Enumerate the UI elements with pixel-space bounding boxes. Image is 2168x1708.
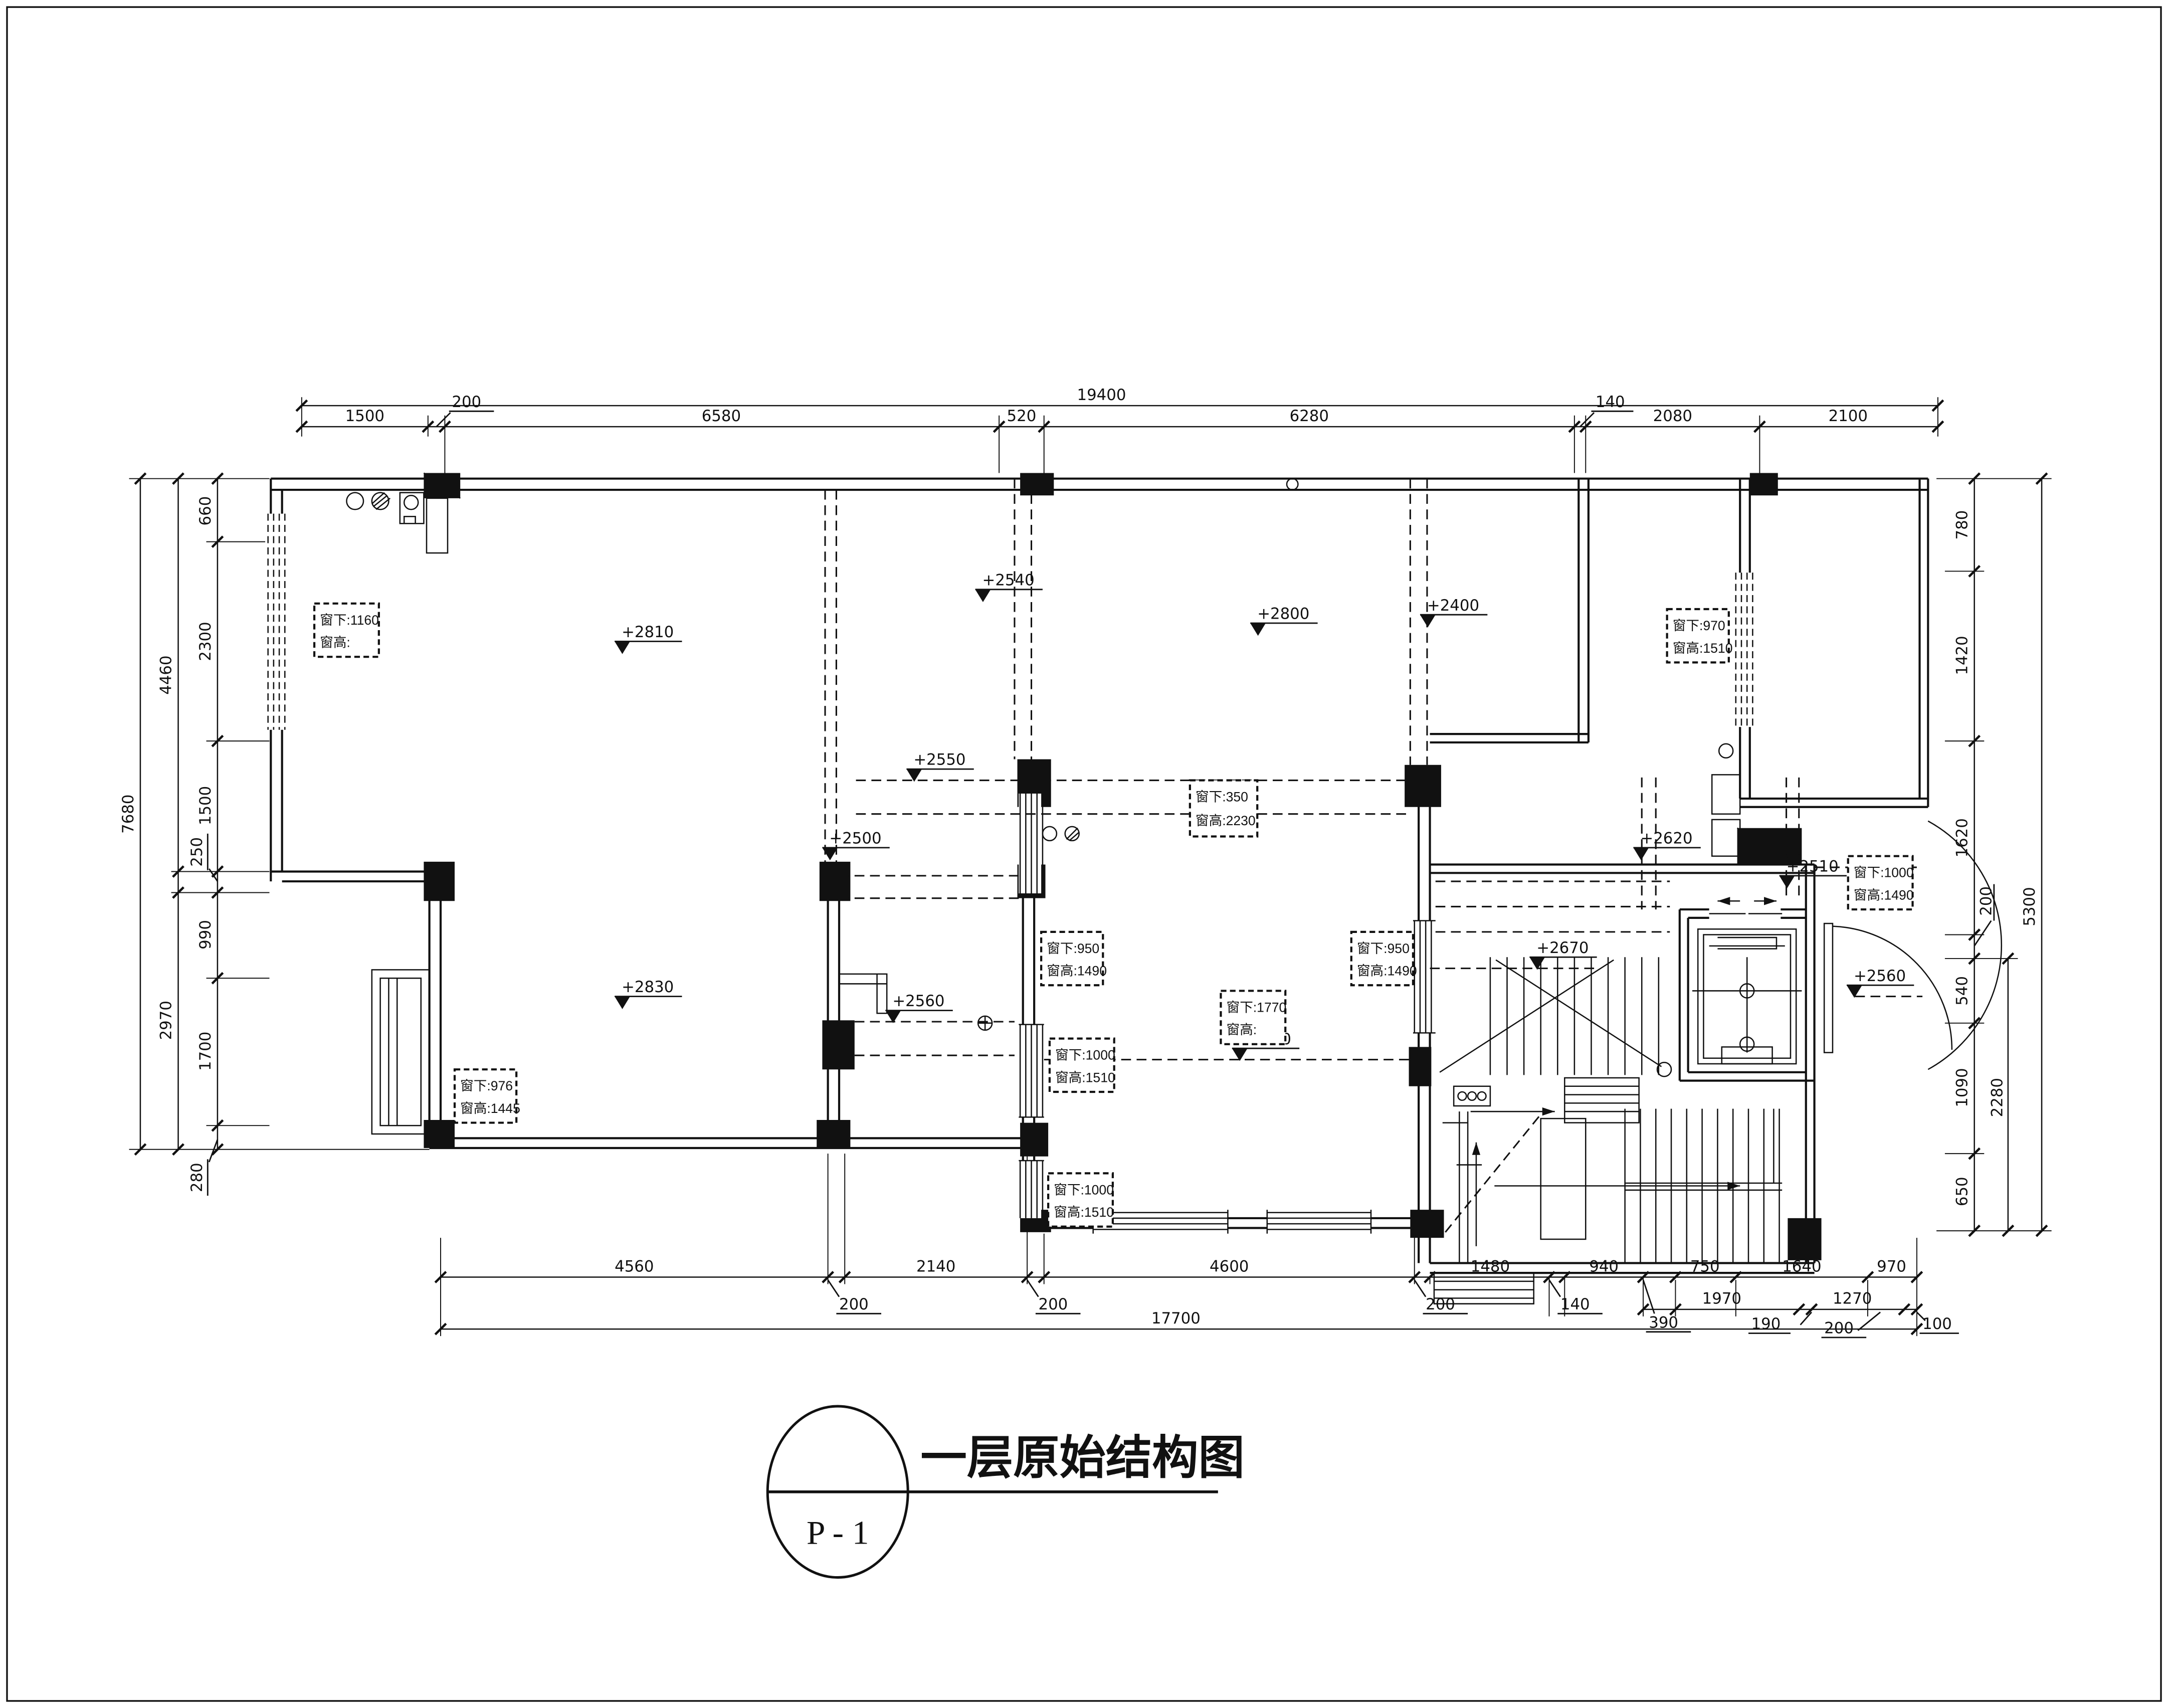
flue-duct bbox=[427, 498, 448, 553]
svg-text:520: 520 bbox=[1007, 407, 1037, 425]
svg-text:+2670: +2670 bbox=[1536, 939, 1589, 957]
dim-leader: 250 bbox=[188, 834, 218, 881]
svg-text:4460: 4460 bbox=[157, 655, 175, 694]
svg-text:窗下:1000: 窗下:1000 bbox=[1054, 1182, 1114, 1197]
svg-text:1620: 1620 bbox=[1953, 818, 1972, 857]
svg-text:窗下:350: 窗下:350 bbox=[1196, 790, 1248, 805]
svg-text:+2810: +2810 bbox=[622, 623, 674, 641]
svg-text:窗高:: 窗高: bbox=[1227, 1022, 1257, 1037]
elevation-marker: +2620 bbox=[1633, 830, 1700, 861]
svg-text:1270: 1270 bbox=[1833, 1290, 1872, 1308]
drawing-title: 一层原始结构图 bbox=[920, 1431, 1245, 1483]
top-wall-circle bbox=[1287, 479, 1298, 490]
svg-text:2300: 2300 bbox=[196, 622, 215, 661]
window-label: 窗下:976窗高:1445 bbox=[455, 1069, 520, 1122]
curved-bay-arc bbox=[1928, 821, 2001, 1069]
svg-text:6580: 6580 bbox=[702, 407, 741, 425]
elevation-marker: +2560 bbox=[1847, 967, 1914, 998]
window-label: 窗下:350窗高:2230 bbox=[1190, 781, 1257, 837]
title-block: P - 1 一层原始结构图 bbox=[767, 1406, 1245, 1578]
svg-text:+2560: +2560 bbox=[892, 992, 944, 1010]
svg-text:窗高:1490: 窗高:1490 bbox=[1047, 964, 1107, 979]
svg-text:200: 200 bbox=[1977, 886, 1995, 916]
dim-left-total: 7680 bbox=[119, 795, 137, 834]
svg-text:2080: 2080 bbox=[1653, 407, 1692, 425]
svg-text:窗下:1770: 窗下:1770 bbox=[1227, 1000, 1287, 1015]
dim-leader: 140 bbox=[1549, 1280, 1602, 1313]
svg-text:窗下:970: 窗下:970 bbox=[1673, 618, 1725, 633]
svg-text:200: 200 bbox=[1039, 1295, 1068, 1313]
dim-leader: 280 bbox=[188, 1140, 218, 1196]
elevation-marker: +2800 bbox=[1250, 605, 1317, 636]
window-label: 窗下:1000窗高:1510 bbox=[1048, 1173, 1114, 1226]
dim-leader: 200 bbox=[1027, 1280, 1080, 1313]
svg-text:窗下:1000: 窗下:1000 bbox=[1055, 1048, 1115, 1063]
elevation-marker: +2400 bbox=[1420, 597, 1487, 628]
svg-text:200: 200 bbox=[1824, 1319, 1854, 1337]
svg-text:1970: 1970 bbox=[1702, 1290, 1741, 1308]
svg-text:200: 200 bbox=[452, 393, 481, 411]
staircase bbox=[1440, 957, 1782, 1263]
elevation-marker: +2670 bbox=[1529, 939, 1597, 970]
svg-text:窗下:976: 窗下:976 bbox=[460, 1078, 513, 1093]
entry-fixture bbox=[1454, 1086, 1490, 1106]
svg-text:2970: 2970 bbox=[157, 1001, 175, 1040]
elevation-marker: +2550 bbox=[906, 751, 973, 782]
svg-text:200: 200 bbox=[839, 1295, 869, 1313]
svg-text:窗高:1445: 窗高:1445 bbox=[460, 1101, 520, 1116]
svg-text:窗高:: 窗高: bbox=[320, 635, 350, 650]
svg-text:+2500: +2500 bbox=[829, 830, 881, 848]
svg-text:650: 650 bbox=[1953, 1177, 1972, 1206]
elevator bbox=[1692, 901, 1802, 1064]
svg-text:窗高:1490: 窗高:1490 bbox=[1854, 887, 1914, 902]
bay-window bbox=[372, 970, 430, 1134]
svg-text:190: 190 bbox=[1751, 1315, 1781, 1333]
svg-text:2280: 2280 bbox=[1989, 1078, 2007, 1117]
dim-leader: 200 bbox=[1822, 1312, 1881, 1337]
svg-text:1500: 1500 bbox=[345, 407, 384, 425]
svg-text:窗高:1490: 窗高:1490 bbox=[1357, 964, 1417, 979]
dim-right-total: 5300 bbox=[2021, 887, 2039, 926]
dim-top-total: 19400 bbox=[1077, 386, 1126, 404]
svg-text:1090: 1090 bbox=[1953, 1068, 1972, 1107]
sheet-number: P - 1 bbox=[807, 1513, 869, 1551]
svg-text:280: 280 bbox=[188, 1163, 206, 1192]
svg-text:540: 540 bbox=[1953, 976, 1972, 1006]
svg-text:窗下:1160: 窗下:1160 bbox=[320, 613, 379, 628]
floor-plan-svg: 19400 1500 200 6580 520 6280 140 2080 21… bbox=[0, 0, 2168, 1708]
svg-text:+2550: +2550 bbox=[913, 751, 965, 769]
svg-text:250: 250 bbox=[188, 837, 206, 867]
dim-leader: 190 bbox=[1748, 1312, 1812, 1333]
window-label: 窗下:1000窗高:1510 bbox=[1050, 1039, 1115, 1092]
dim-bottom-total: 17700 bbox=[1151, 1309, 1201, 1327]
svg-text:1500: 1500 bbox=[196, 786, 215, 825]
svg-text:1700: 1700 bbox=[196, 1032, 215, 1071]
riser-circle bbox=[1719, 744, 1733, 758]
window-label: 窗下:1160窗高: bbox=[314, 604, 379, 657]
structural-columns bbox=[424, 473, 1821, 1260]
svg-text:窗下:950: 窗下:950 bbox=[1047, 941, 1099, 956]
svg-text:970: 970 bbox=[1877, 1257, 1906, 1275]
riser-circle bbox=[1043, 827, 1057, 841]
dim-leader: 390 bbox=[1643, 1280, 1691, 1332]
window-label: 窗下:970窗高:1510 bbox=[1667, 609, 1733, 662]
svg-text:4560: 4560 bbox=[615, 1257, 654, 1275]
svg-text:窗下:1000: 窗下:1000 bbox=[1854, 865, 1914, 880]
svg-text:2140: 2140 bbox=[916, 1257, 955, 1275]
svg-text:6280: 6280 bbox=[1290, 407, 1329, 425]
svg-text:+2800: +2800 bbox=[1257, 605, 1309, 623]
svg-text:+2540: +2540 bbox=[982, 571, 1035, 589]
elevation-marker: +2500 bbox=[822, 830, 889, 861]
svg-text:窗高:1510: 窗高:1510 bbox=[1054, 1205, 1114, 1220]
window-label: 窗下:950窗高:1490 bbox=[1041, 932, 1107, 985]
svg-text:100: 100 bbox=[1922, 1315, 1952, 1333]
elevation-marker: +2510 bbox=[1780, 857, 1847, 888]
svg-text:780: 780 bbox=[1953, 510, 1972, 540]
dim-leader: 100 bbox=[1917, 1312, 1959, 1333]
svg-text:+2400: +2400 bbox=[1427, 597, 1479, 615]
window-label: 窗下:1770窗高: bbox=[1221, 991, 1286, 1044]
svg-text:+2510: +2510 bbox=[1787, 857, 1839, 875]
svg-text:+2830: +2830 bbox=[622, 978, 674, 996]
elevation-marker: +2810 bbox=[615, 623, 682, 654]
elevation-marker: +2540 bbox=[975, 571, 1043, 602]
svg-text:390: 390 bbox=[1649, 1313, 1678, 1332]
dim-leader: 140 bbox=[1580, 393, 1633, 427]
fixtures bbox=[346, 479, 1733, 1030]
elevation-marker: +2830 bbox=[615, 978, 682, 1009]
window-label: 窗下:1000窗高:1490 bbox=[1848, 856, 1914, 909]
svg-text:+2560: +2560 bbox=[1854, 967, 1906, 985]
dim-leader: 200 bbox=[828, 1280, 881, 1313]
svg-text:140: 140 bbox=[1560, 1295, 1590, 1313]
drawing-sheet: 19400 1500 200 6580 520 6280 140 2080 21… bbox=[0, 0, 2168, 1708]
riser-circle bbox=[346, 493, 363, 510]
svg-text:1420: 1420 bbox=[1953, 636, 1972, 675]
door-leaf bbox=[1824, 923, 1833, 1053]
svg-text:窗高:1510: 窗高:1510 bbox=[1673, 641, 1733, 656]
svg-text:140: 140 bbox=[1596, 393, 1625, 411]
elevation-marker: +2560 bbox=[885, 992, 952, 1023]
svg-text:990: 990 bbox=[196, 920, 215, 950]
window-label: 窗下:950窗高:1490 bbox=[1351, 932, 1417, 985]
svg-text:窗下:950: 窗下:950 bbox=[1357, 941, 1410, 956]
dim-leader: 200 bbox=[1415, 1280, 1468, 1313]
svg-text:4600: 4600 bbox=[1210, 1257, 1249, 1275]
window-labels: 窗下:1160窗高: 窗下:970窗高:1510 窗下:350窗高:2230 窗… bbox=[314, 604, 1914, 1227]
svg-text:2100: 2100 bbox=[1829, 407, 1868, 425]
svg-text:+2620: +2620 bbox=[1640, 830, 1692, 848]
svg-text:660: 660 bbox=[196, 496, 215, 526]
svg-text:窗高:2230: 窗高:2230 bbox=[1196, 813, 1256, 828]
svg-text:窗高:1510: 窗高:1510 bbox=[1055, 1070, 1115, 1085]
